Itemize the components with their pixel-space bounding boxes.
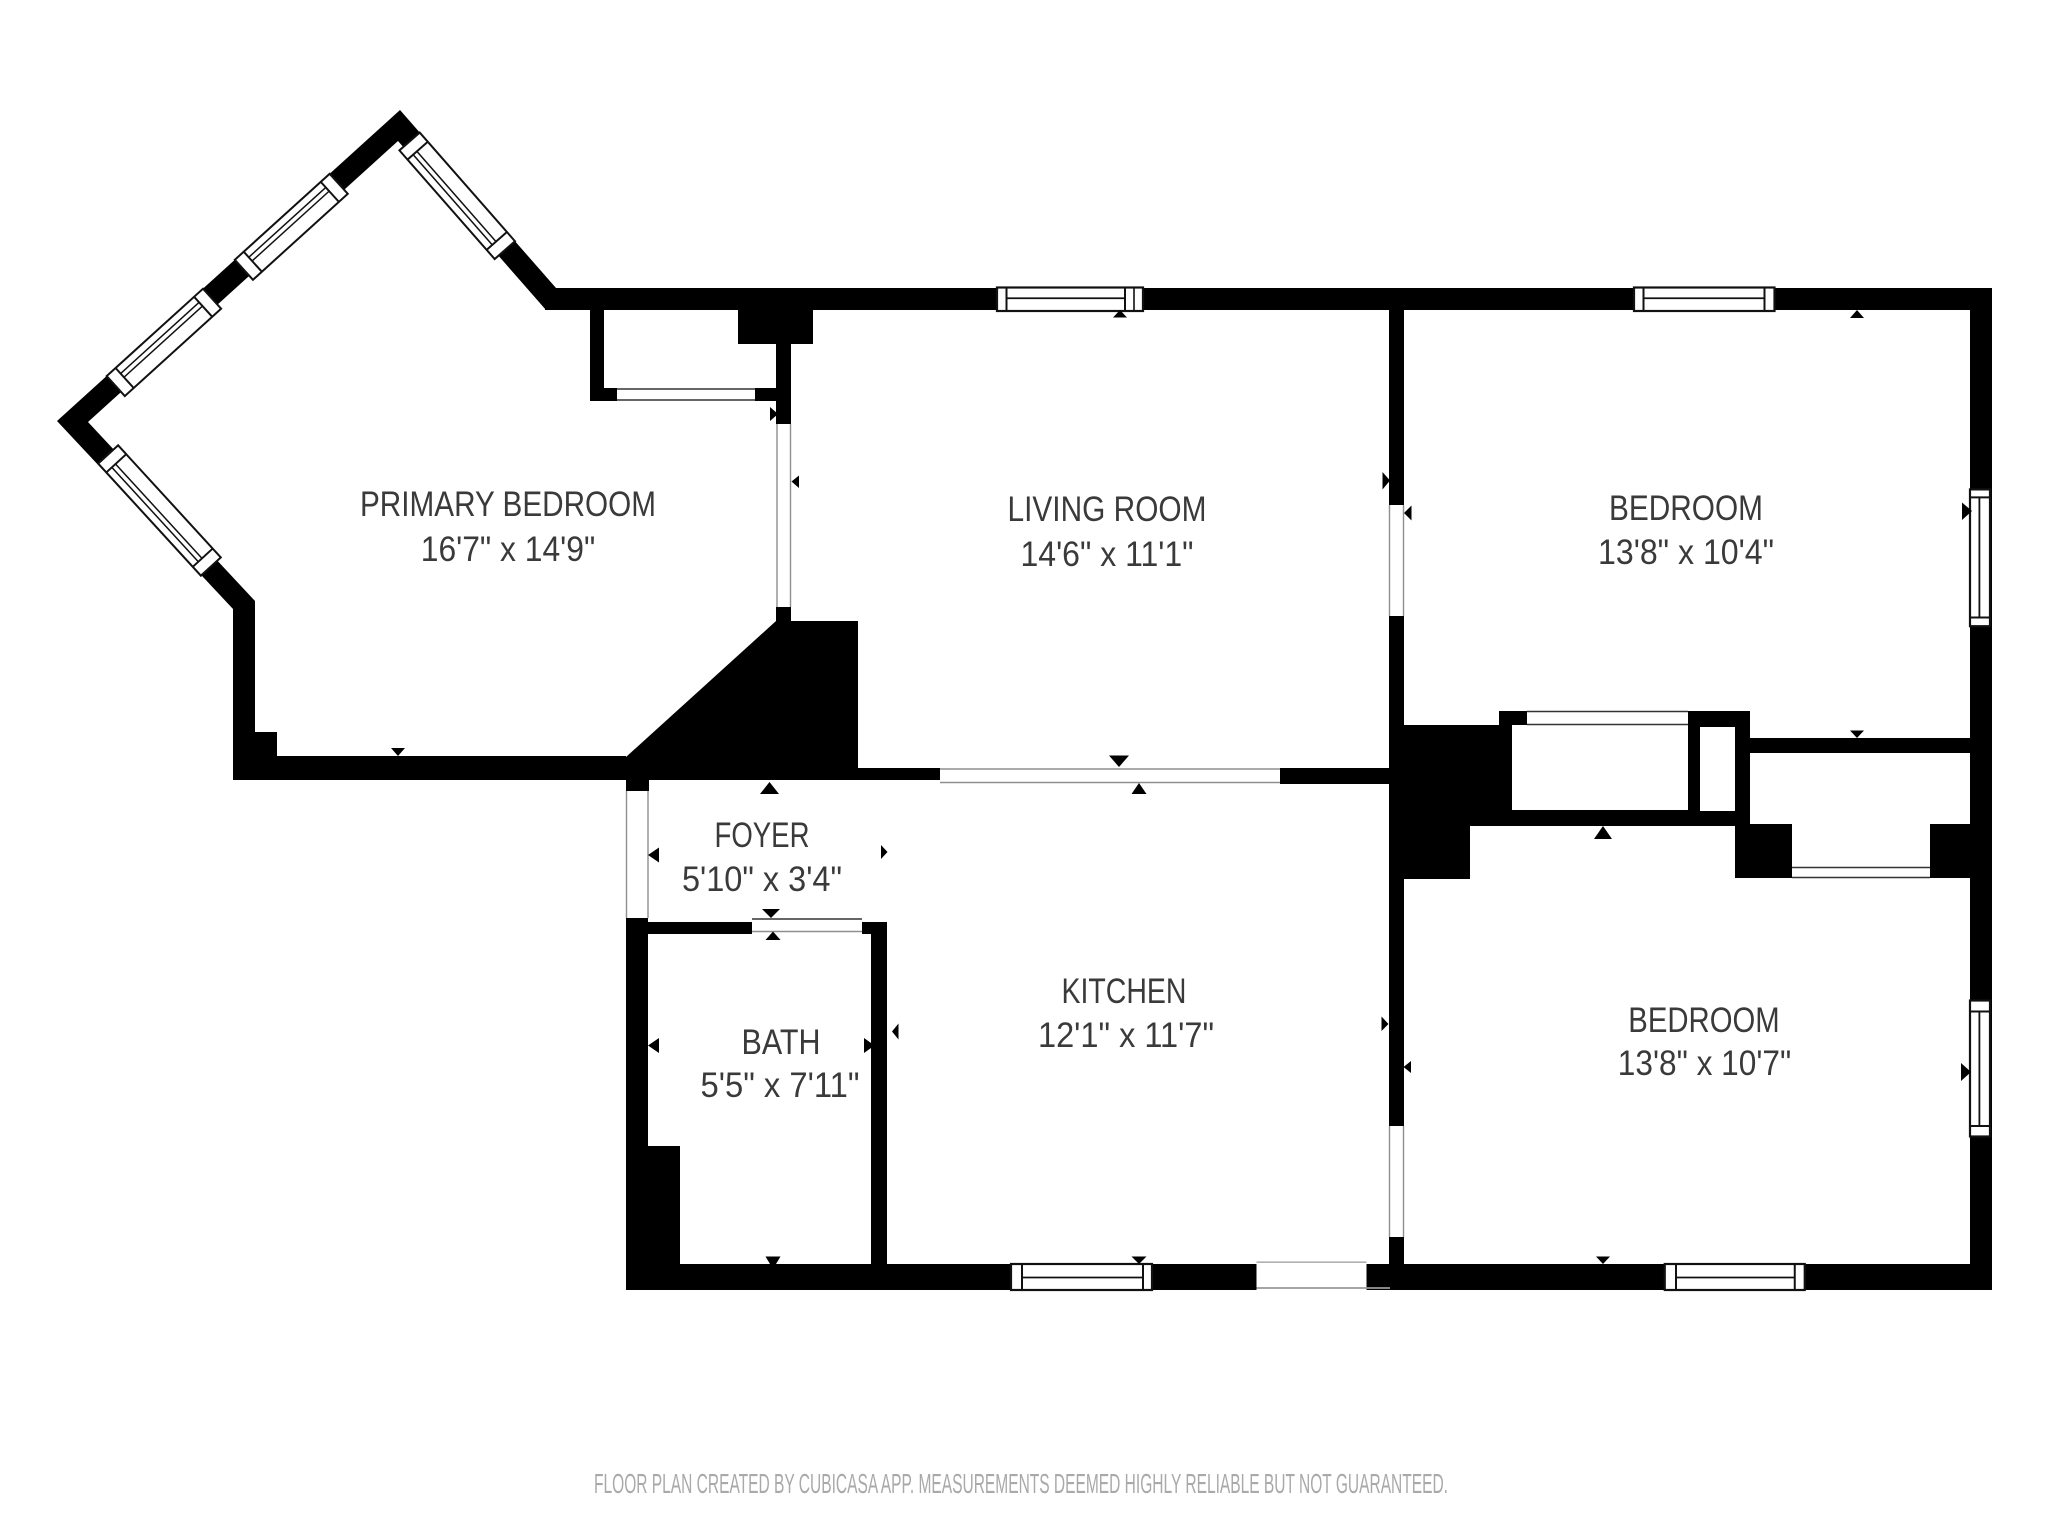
svg-text:PRIMARY BEDROOM: PRIMARY BEDROOM xyxy=(360,485,656,524)
svg-text:BEDROOM: BEDROOM xyxy=(1628,1001,1779,1040)
svg-text:FLOOR PLAN CREATED BY CUBICASA: FLOOR PLAN CREATED BY CUBICASA APP. MEAS… xyxy=(594,1468,1448,1499)
svg-text:FOYER: FOYER xyxy=(715,816,810,855)
svg-text:KITCHEN: KITCHEN xyxy=(1062,972,1187,1011)
svg-text:BATH: BATH xyxy=(742,1023,821,1062)
svg-text:16'7" x 14'9": 16'7" x 14'9" xyxy=(421,530,596,569)
svg-text:LIVING ROOM: LIVING ROOM xyxy=(1008,490,1207,529)
svg-text:14'6" x 11'1": 14'6" x 11'1" xyxy=(1021,535,1194,574)
svg-text:5'10" x 3'4": 5'10" x 3'4" xyxy=(682,860,842,899)
svg-text:BEDROOM: BEDROOM xyxy=(1609,489,1763,528)
svg-text:5'5" x 7'11": 5'5" x 7'11" xyxy=(701,1066,860,1105)
svg-text:13'8" x 10'7": 13'8" x 10'7" xyxy=(1618,1044,1791,1083)
svg-text:13'8" x 10'4": 13'8" x 10'4" xyxy=(1598,533,1774,572)
svg-text:12'1" x 11'7": 12'1" x 11'7" xyxy=(1038,1016,1214,1055)
